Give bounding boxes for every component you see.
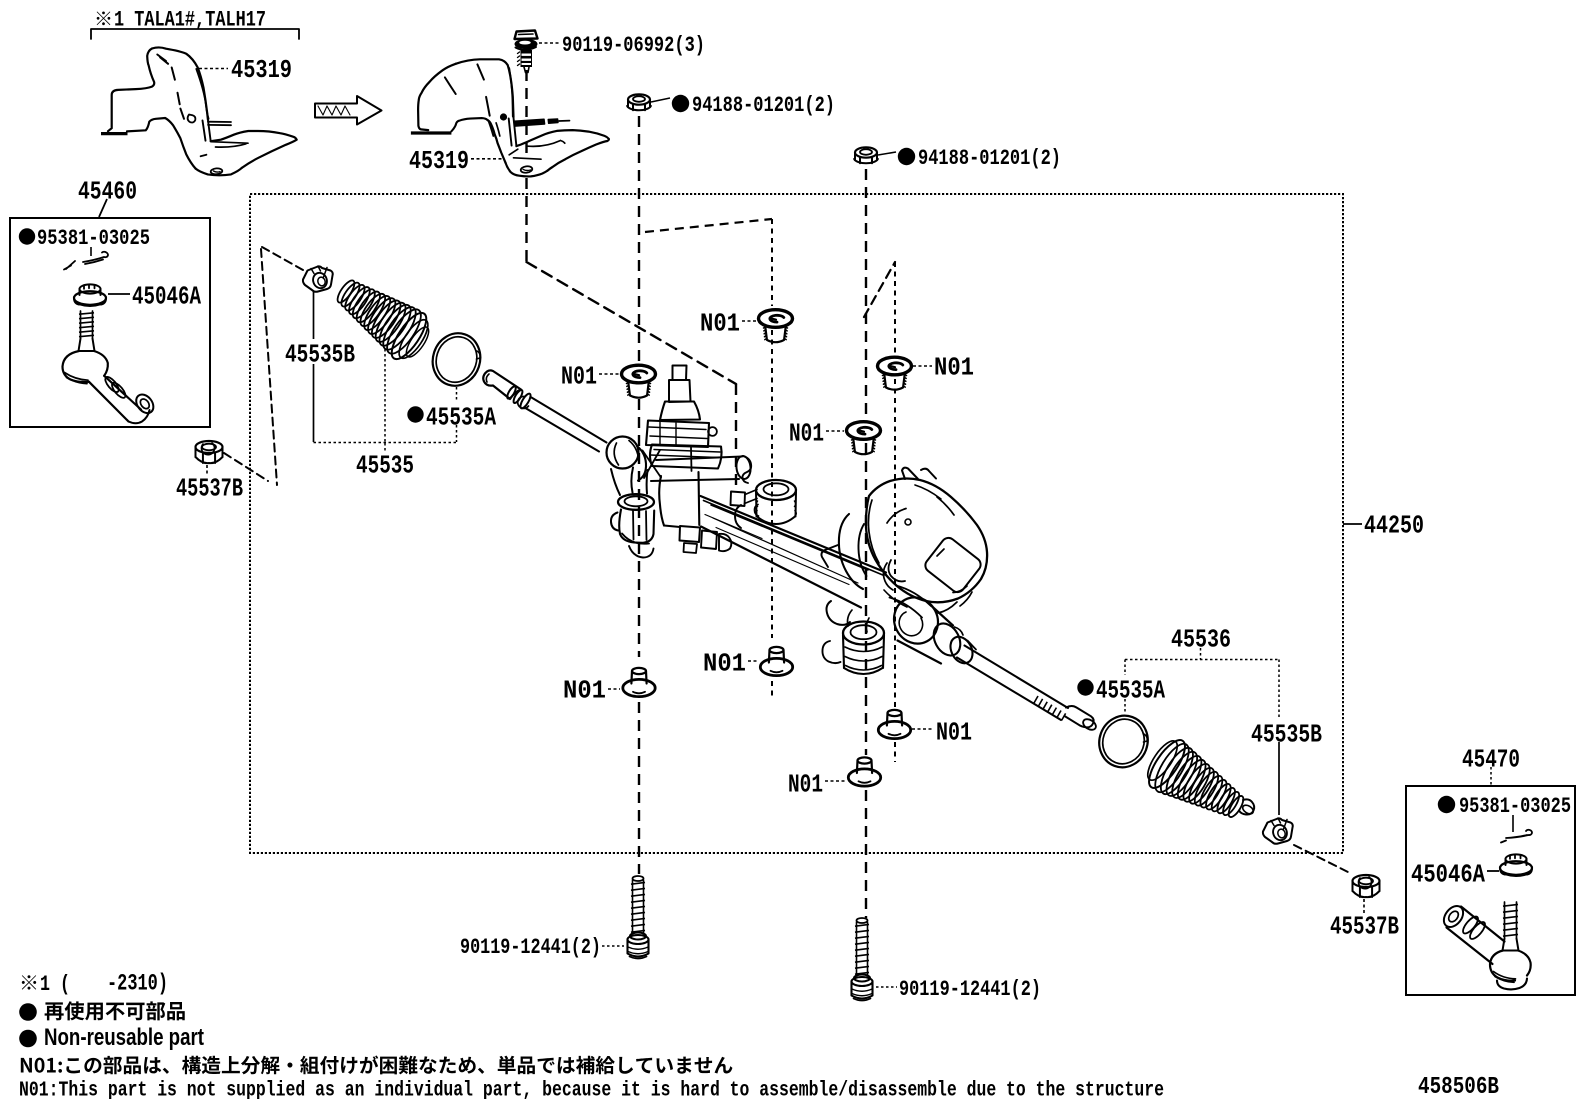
svg-text:90119-12441(2): 90119-12441(2): [899, 976, 1041, 1002]
svg-text:44250: 44250: [1364, 510, 1424, 540]
svg-text:N01:This part is not supplied: N01:This part is not supplied as an indi…: [19, 1078, 1164, 1099]
svg-text:45046A: 45046A: [132, 281, 201, 311]
svg-text:90119-06992(3): 90119-06992(3): [562, 32, 705, 58]
svg-text:N01: N01: [700, 308, 740, 338]
svg-text:N01: N01: [563, 675, 606, 705]
svg-text:N01: N01: [561, 361, 597, 391]
svg-text:45535: 45535: [356, 450, 414, 480]
svg-text:45460: 45460: [78, 176, 137, 206]
svg-text:45319: 45319: [231, 56, 292, 85]
svg-text:1 (: 1 (: [40, 971, 70, 997]
svg-text:Non-reusable part: Non-reusable part: [44, 1024, 204, 1051]
svg-text:90119-12441(2): 90119-12441(2): [460, 934, 601, 960]
svg-text:N01: N01: [936, 717, 972, 747]
svg-text:45535B: 45535B: [1251, 719, 1322, 749]
svg-text:94188-01201(2): 94188-01201(2): [692, 92, 835, 118]
svg-text:45537B: 45537B: [1330, 911, 1399, 941]
svg-text:N01: N01: [703, 648, 746, 678]
svg-text:N01: N01: [934, 352, 974, 382]
svg-text:95381-03025: 95381-03025: [1459, 793, 1571, 819]
svg-text:45046A: 45046A: [1411, 859, 1485, 889]
svg-text:45535A: 45535A: [1096, 675, 1165, 705]
svg-text:N01: N01: [789, 418, 824, 448]
svg-text:45537B: 45537B: [176, 473, 243, 503]
svg-text:95381-03025: 95381-03025: [37, 225, 150, 251]
svg-text:458506B: 458506B: [1418, 1074, 1499, 1099]
svg-text:94188-01201(2): 94188-01201(2): [918, 145, 1061, 171]
svg-text:45319: 45319: [409, 147, 469, 176]
svg-text:45535A: 45535A: [426, 402, 496, 432]
svg-text:N01: N01: [788, 769, 823, 799]
svg-text:-2310): -2310): [107, 971, 168, 997]
svg-text:45470: 45470: [1462, 744, 1520, 774]
svg-text:45535B: 45535B: [285, 339, 355, 369]
